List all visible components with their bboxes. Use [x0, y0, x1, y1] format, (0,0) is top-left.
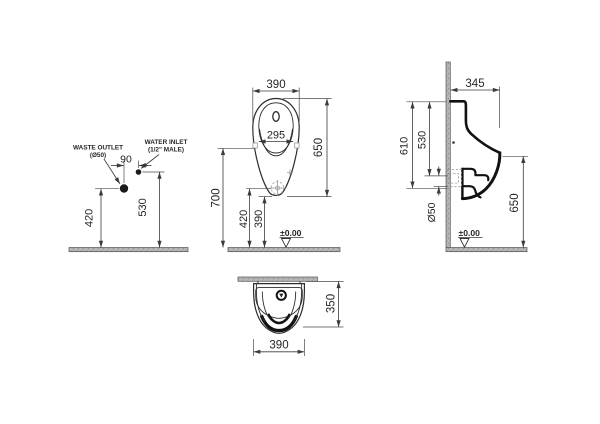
dimension-depth: 350	[303, 281, 344, 327]
water-inlet-label-sub: (1/2" MALE)	[148, 147, 184, 154]
dimension-front-edge-height: 650	[503, 156, 529, 247]
urinal-side-profile	[450, 101, 500, 198]
dimension-width: 390	[254, 339, 305, 356]
svg-text:420: 420	[238, 210, 250, 228]
svg-text:350: 350	[326, 294, 338, 313]
technical-drawing-canvas: WASTE OUTLET (Ø50) WATER INLET (1/2" MAL…	[0, 0, 600, 424]
dimension-water-inlet-height: 530	[137, 172, 165, 248]
dimension-bottom-height: 390	[253, 197, 272, 248]
floor-line	[228, 248, 340, 252]
hidden-drain	[270, 180, 286, 196]
dimension-rim-to-inlet: 530	[417, 102, 448, 176]
water-inlet-hole	[273, 112, 279, 122]
datum-level: ±0.00	[280, 228, 304, 247]
svg-text:295: 295	[267, 130, 285, 142]
svg-text:Ø50: Ø50	[426, 202, 438, 222]
water-inlet-dot	[136, 169, 142, 175]
fixing-point-dot	[452, 141, 455, 144]
front-view: 390 295 650 700 420 390 ±0.0	[211, 79, 341, 252]
svg-text:345: 345	[465, 78, 484, 90]
floor-line	[446, 248, 527, 252]
dimension-fixing-height: 700	[211, 148, 255, 247]
svg-text:530: 530	[417, 131, 429, 149]
waste-outlet-leader-arrow	[104, 159, 120, 184]
svg-text:390: 390	[269, 339, 288, 351]
svg-text:±0.00: ±0.00	[459, 228, 481, 238]
fixing-hole-right	[295, 143, 299, 148]
water-inlet-leader-arrow	[141, 155, 159, 169]
svg-text:650: 650	[313, 138, 325, 157]
svg-text:390: 390	[253, 210, 265, 228]
datum-triangle-icon	[460, 239, 469, 248]
wall-section	[446, 62, 450, 248]
urinal-top-outline	[254, 284, 305, 334]
waste-outlet-label-sub: (Ø50)	[90, 152, 106, 159]
svg-text:390: 390	[266, 79, 285, 91]
svg-text:±0.00: ±0.00	[280, 228, 302, 238]
fixing-hole-left	[253, 143, 257, 148]
dimension-waste-outlet-height: 420	[84, 189, 120, 248]
svg-text:530: 530	[137, 198, 149, 216]
connection-view: WASTE OUTLET (Ø50) WATER INLET (1/2" MAL…	[69, 139, 188, 252]
top-view: 350 390	[238, 277, 344, 356]
drawing-page: WASTE OUTLET (Ø50) WATER INLET (1/2" MAL…	[0, 0, 600, 424]
dimension-body-height: 650	[283, 99, 332, 197]
dimension-rim-opening: 295	[259, 130, 293, 142]
water-inlet-label: WATER INLET	[145, 139, 188, 146]
waste-outlet-label: WASTE OUTLET	[73, 145, 123, 152]
urinal-front-outline	[253, 99, 299, 196]
dimension-depth: 345	[451, 78, 500, 128]
svg-text:700: 700	[211, 188, 223, 207]
waste-outlet-dot	[120, 184, 128, 192]
svg-text:650: 650	[509, 193, 521, 212]
wall-section	[238, 277, 318, 281]
floor-line	[69, 248, 188, 252]
svg-text:610: 610	[399, 137, 411, 155]
svg-text:420: 420	[84, 209, 96, 227]
datum-triangle-icon	[282, 239, 291, 248]
datum-level: ±0.00	[458, 228, 483, 247]
dimension-inlet-offset: 90	[111, 154, 152, 184]
svg-text:90: 90	[120, 154, 132, 166]
side-view: 345 610 530 Ø50 650 ±0.00	[399, 62, 529, 252]
